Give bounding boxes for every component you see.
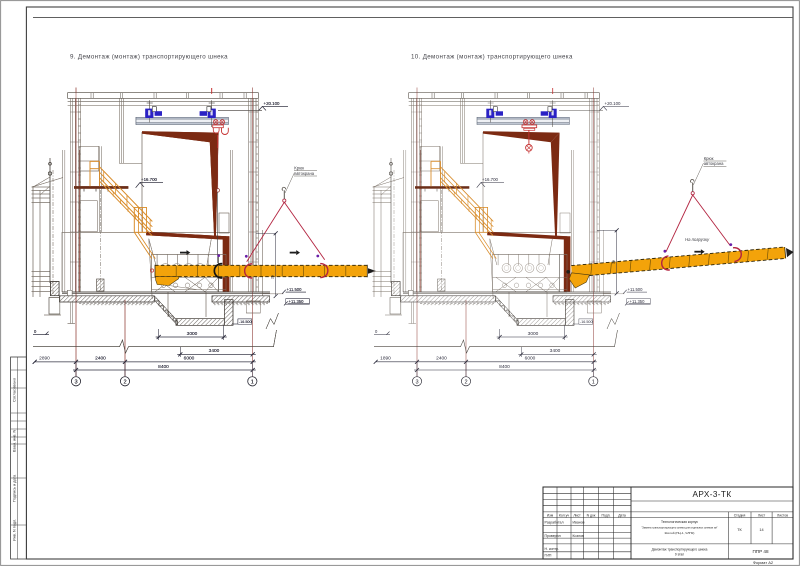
svg-text:Взам. инв. N: Взам. инв. N [12, 430, 16, 452]
svg-text:автокрана: автокрана [704, 161, 724, 166]
svg-text:Лист: Лист [758, 514, 766, 518]
svg-text:На погрузку: На погрузку [685, 237, 710, 242]
svg-text:Подпись и дата: Подпись и дата [12, 474, 16, 502]
svg-text:10. Демонтаж (монтаж) транспор: 10. Демонтаж (монтаж) транспортирующего … [411, 53, 573, 60]
svg-text:Демонтаж транспортирующего шне: Демонтаж транспортирующего шнека [652, 548, 708, 552]
svg-text:Кол.уч: Кол.уч [559, 514, 569, 518]
svg-text:Крюк: Крюк [704, 156, 714, 161]
svg-text:N док: N док [587, 514, 596, 518]
svg-text:Инв. N подл.: Инв. N подл. [12, 519, 16, 541]
svg-text:ГИП: ГИП [545, 554, 552, 558]
svg-text:1890: 1890 [380, 356, 391, 362]
svg-text:9 этап: 9 этап [675, 553, 684, 557]
svg-text:ТК: ТК [737, 528, 742, 532]
svg-text:2890: 2890 [39, 356, 50, 362]
svg-text:Изм: Изм [547, 514, 554, 518]
svg-text:Разработал: Разработал [545, 521, 564, 525]
svg-text:ППР 48: ППР 48 [752, 549, 768, 554]
svg-text:Технологическая корпус: Технологическая корпус [661, 520, 698, 524]
svg-text:Н. контр.: Н. контр. [545, 547, 559, 551]
svg-text:2м: 2м [611, 259, 615, 264]
svg-text:Лист: Лист [573, 514, 581, 518]
svg-text:14: 14 [759, 528, 763, 532]
svg-text:Подп.: Подп. [601, 514, 610, 518]
svg-text:Козлов: Козлов [573, 534, 585, 538]
svg-text:Жилой (ПЦ-1, ЧЛПК): Жилой (ПЦ-1, ЧЛПК) [665, 531, 695, 535]
svg-text:Дата: Дата [618, 514, 626, 518]
svg-text:Стадия: Стадия [734, 514, 746, 518]
svg-text:Листов: Листов [777, 514, 788, 518]
svg-text:автокрана: автокрана [294, 171, 314, 176]
svg-text:2м: 2м [270, 274, 274, 279]
svg-text:Согласовано: Согласовано [11, 377, 16, 402]
svg-text:Проверил: Проверил [545, 534, 561, 538]
svg-text:9. Демонтаж (монтаж) транспорт: 9. Демонтаж (монтаж) транспортирующего ш… [70, 53, 228, 60]
svg-text:Крюк: Крюк [294, 166, 304, 171]
svg-text:Формат А2: Формат А2 [753, 560, 774, 565]
svg-text:АРХ-3-ТК: АРХ-3-ТК [693, 490, 732, 499]
svg-text:"Замена транспортирующего шнек: "Замена транспортирующего шнека для отде… [641, 526, 717, 530]
svg-text:Иванов: Иванов [573, 521, 585, 525]
